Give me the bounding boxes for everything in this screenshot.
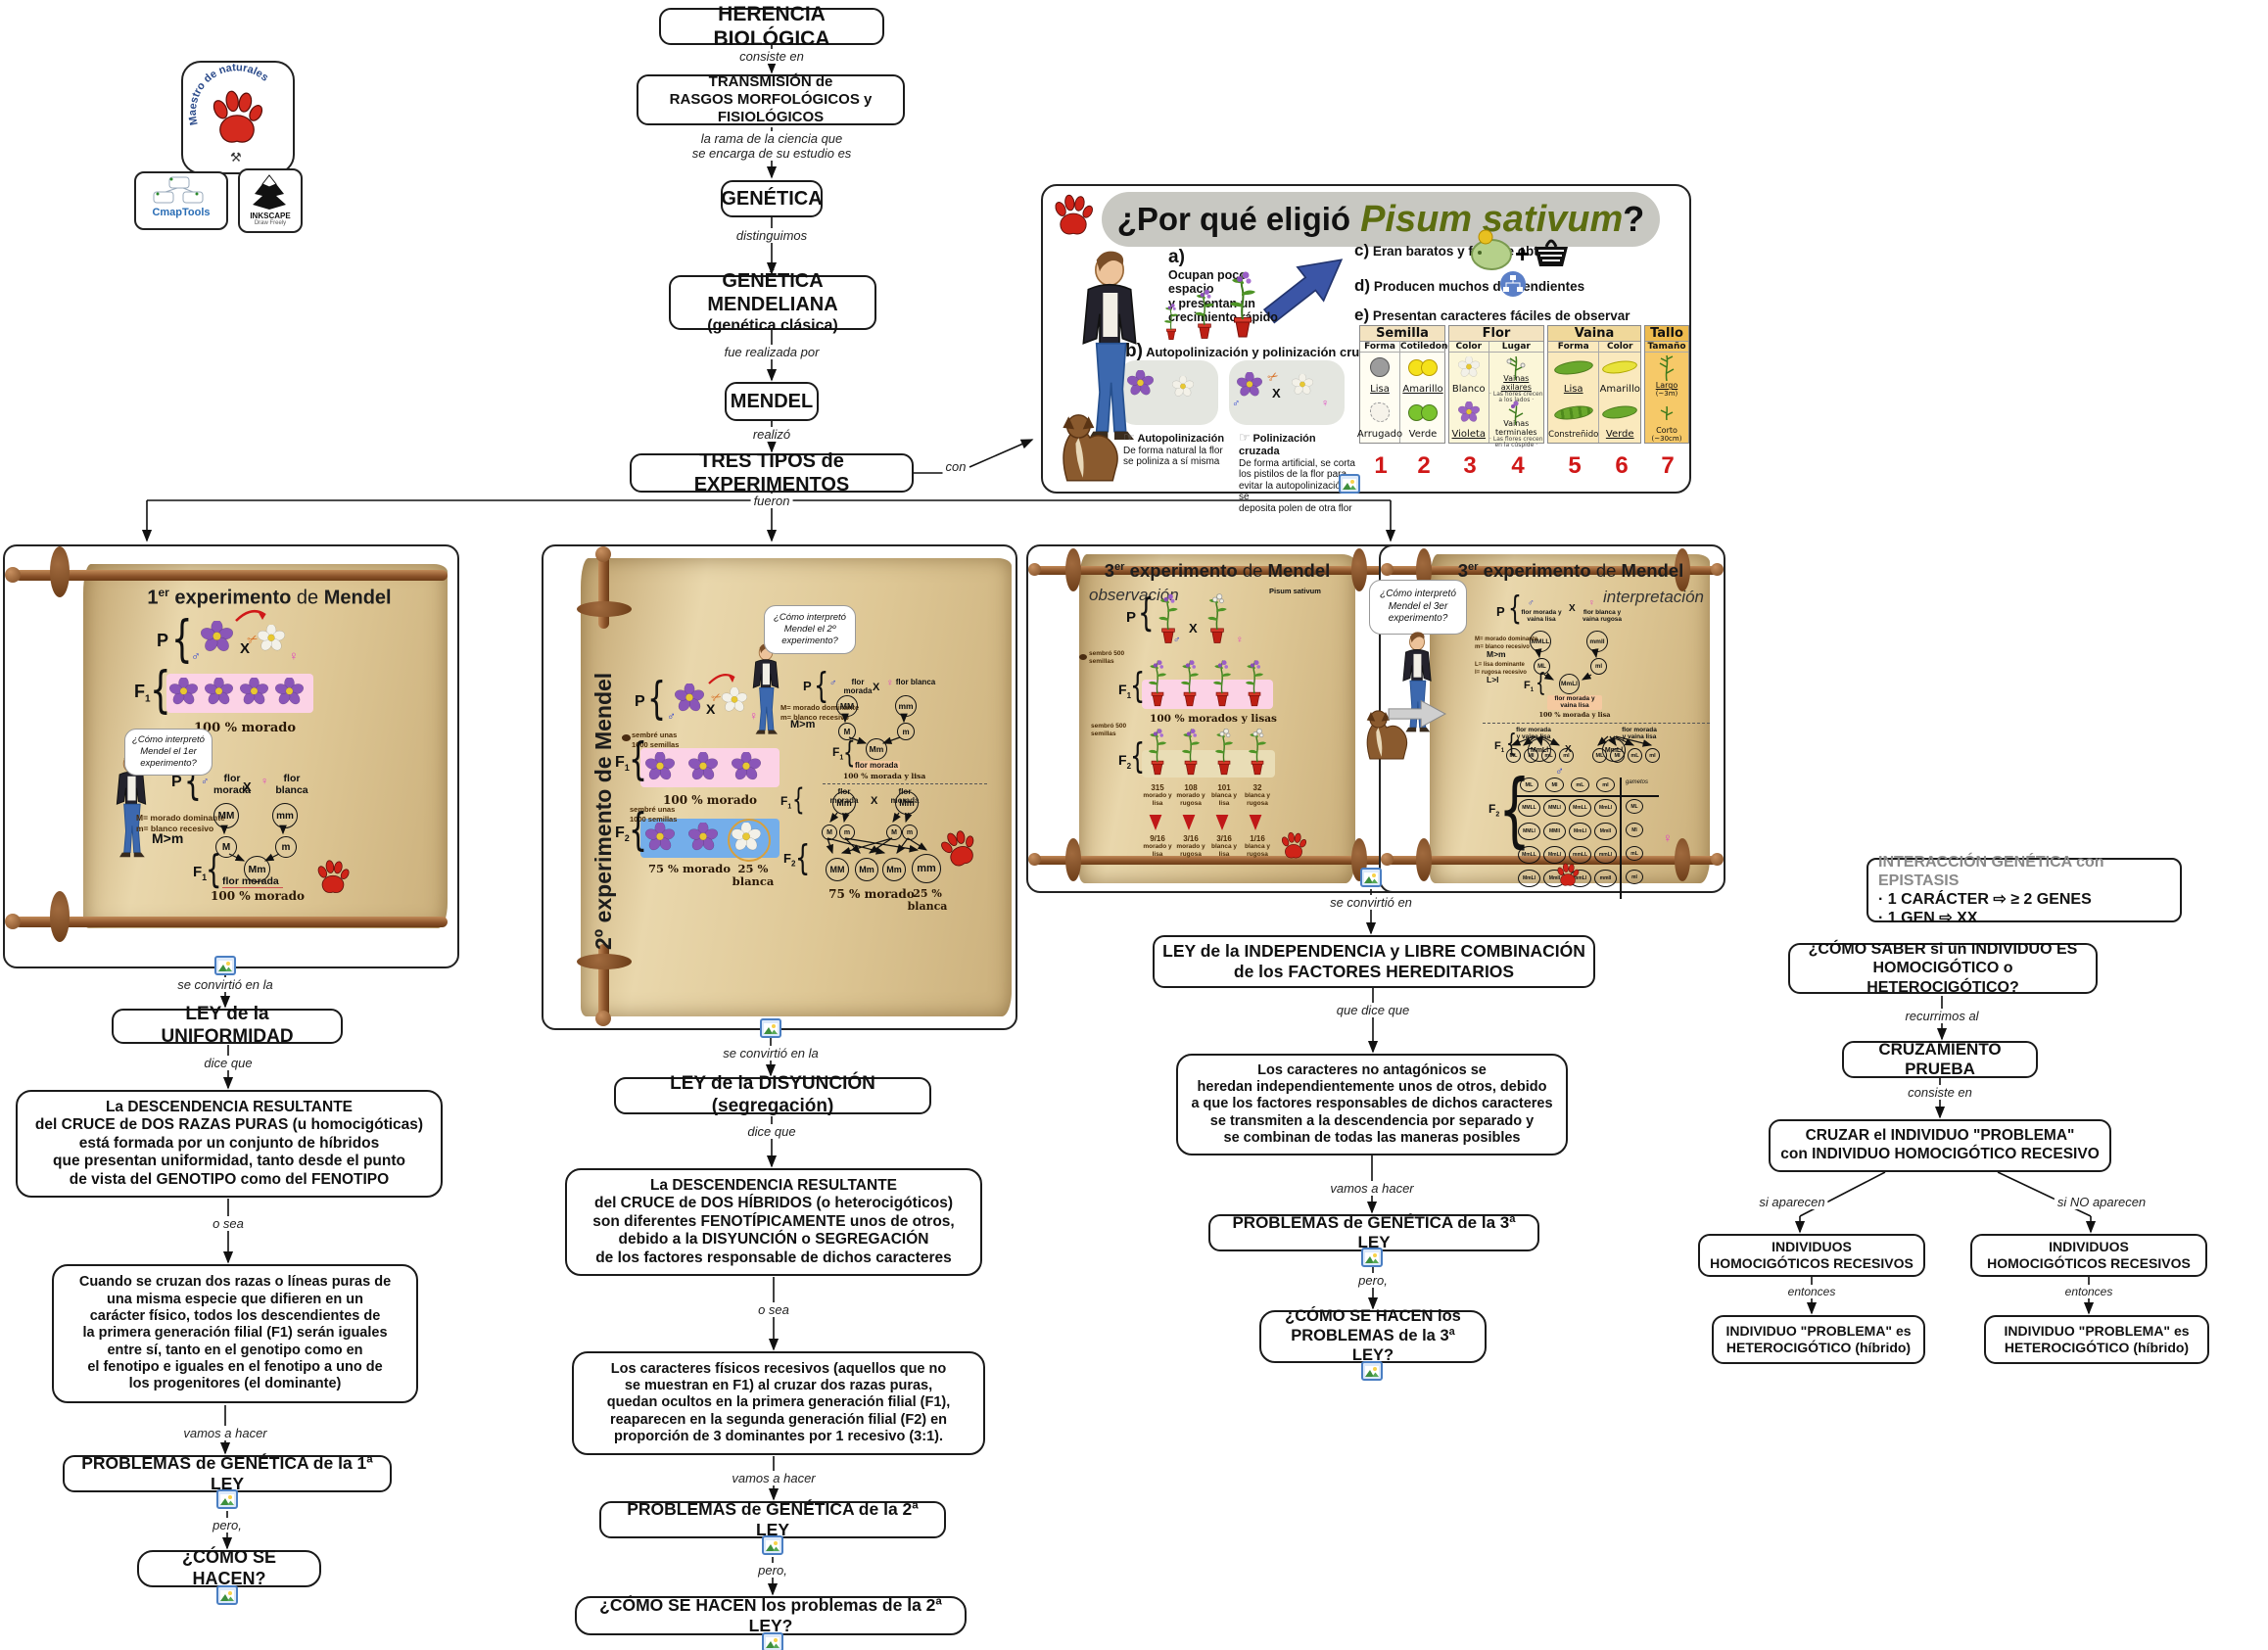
- f2-count: 315morado ylisa: [1142, 783, 1173, 807]
- cmaptools-label: CmapTools: [136, 207, 226, 219]
- white-flower-icon: [1172, 376, 1194, 398]
- exp2-question-bubble: ¿Cómo interpretóMendel el 2ºexperimento?: [764, 605, 856, 654]
- f2-fraction: 9/16morado ylisa: [1142, 834, 1173, 858]
- link-se-convirtio-1[interactable]: se convirtió en la: [174, 977, 276, 992]
- link-distinguimos[interactable]: distinguimos: [733, 228, 810, 243]
- node-cruzamiento-prueba[interactable]: CRUZAMIENTO PRUEBA: [1842, 1041, 2038, 1078]
- resource-icon[interactable]: [216, 1585, 238, 1605]
- paw-logo-icon: Maestro de naturales ⚒: [184, 64, 290, 169]
- exp2-scroll-image[interactable]: 2º experimento de Mendel P { ♂ X ✂ ♀ sem…: [542, 544, 1017, 1030]
- allele-legend: M= morado dominantem= blanco recesivo: [1475, 636, 1537, 652]
- paw-stamp-icon: [314, 858, 352, 895]
- inkscape-label: INKSCAPE: [240, 212, 301, 220]
- genotype-mm: mm: [272, 803, 298, 828]
- resource-icon[interactable]: [1361, 1361, 1383, 1381]
- green-pod-icon: [1602, 404, 1638, 421]
- exp3-observation-scroll-image[interactable]: 3er experimento de Mendel observación Pi…: [1026, 544, 1406, 893]
- gamete-m: m: [275, 836, 297, 858]
- resource-icon[interactable]: [1339, 474, 1360, 494]
- f1-percentage: 100 % morados y lisas: [1150, 713, 1277, 725]
- f2-percentage-recessive: 25 %: [732, 862, 775, 875]
- link-fueron[interactable]: fueron: [751, 494, 793, 508]
- resource-icon[interactable]: [760, 1018, 781, 1038]
- purple-flower-icon: [169, 678, 198, 706]
- node-herencia-biologica[interactable]: HERENCIA BIOLÓGICA: [659, 8, 884, 45]
- female-symbol: ♀: [1321, 398, 1329, 409]
- paw-stamp-icon: [1051, 192, 1096, 237]
- purple-flower-icon: [1127, 370, 1154, 397]
- seed-icon: [1079, 654, 1087, 660]
- link-vamos-2[interactable]: vamos a hacer: [729, 1471, 818, 1485]
- purple-flower-icon: [675, 684, 704, 713]
- concept-map-canvas: Maestro de naturales ⚒ CmapTools INKSCAP…: [0, 0, 2268, 1650]
- wrinkled-seed-icon: [1370, 402, 1390, 422]
- pisum-sativum-panel[interactable]: ¿Por qué eligió Pisum sativum ? a) Ocupa…: [1041, 184, 1691, 494]
- p-generation-label: P: [157, 631, 168, 651]
- link-si-aparecen[interactable]: si aparecen: [1756, 1195, 1827, 1209]
- f2-generation-label: F2: [615, 825, 630, 844]
- dog-cartoon: [1045, 409, 1135, 488]
- inkscape-logo: INKSCAPE Draw Freely: [238, 168, 303, 233]
- purple-flower-icon: [205, 678, 233, 706]
- link-o-sea-1[interactable]: o sea: [210, 1216, 247, 1231]
- f2-fraction: 3/16blanca ylisa: [1208, 834, 1240, 858]
- cross-arrow-icon: [232, 605, 271, 623]
- self-pollination-caption: ☞ Autopolinización De forma natural la f…: [1123, 431, 1233, 468]
- purple-flower-icon: [1237, 372, 1262, 398]
- node-genetica-mendeliana[interactable]: GENÉTICA MENDELIANA(genética clásica): [669, 275, 876, 330]
- node-ley-disyuncion[interactable]: LEY de la DISYUNCIÓN (segregación): [614, 1077, 931, 1114]
- interpretation-arrow-icon: [1387, 697, 1447, 731]
- node-ley-uniformidad[interactable]: LEY de la UNIFORMIDAD: [112, 1009, 343, 1044]
- species-tag: Pisum sativum: [1269, 588, 1321, 596]
- link-dice-que-1[interactable]: dice que: [201, 1056, 255, 1070]
- link-se-convirtio-2[interactable]: se convirtió en la: [720, 1046, 822, 1061]
- node-transmision[interactable]: TRANSMISIÓN deRASGOS MORFOLÓGICOS y FISI…: [637, 74, 905, 125]
- resource-icon[interactable]: [214, 956, 236, 975]
- white-pea-plant: [1203, 589, 1232, 646]
- piggybank-basket-icon: +: [1466, 229, 1574, 270]
- exp2-title: 2º experimento de Mendel: [591, 635, 624, 987]
- scroll-handle: [1381, 853, 1394, 866]
- link-rama-ciencia[interactable]: la rama de la ciencia quese encarga de s…: [689, 131, 855, 161]
- inkscape-sublabel: Draw Freely: [240, 220, 301, 227]
- f1-generation-label: F1: [134, 682, 151, 705]
- resource-icon[interactable]: [762, 1535, 783, 1555]
- link-pero-1[interactable]: pero,: [210, 1518, 245, 1532]
- dominance-relation: M>m: [152, 830, 183, 846]
- resource-icon[interactable]: [762, 1632, 783, 1650]
- purple-pea-plant: [1177, 725, 1205, 778]
- yellow-cotyledons-icon: [1408, 359, 1438, 376]
- link-pero-3[interactable]: pero,: [1355, 1273, 1391, 1288]
- table-group-semilla: Semilla Forma Lisa Arrugado Cotiledones …: [1359, 325, 1445, 444]
- scroll-handle: [5, 914, 21, 929]
- white-flower-icon: [1292, 374, 1313, 396]
- node-individuos-recesivos-right[interactable]: INDIVIDUOSHOMOCIGÓTICOS RECESIVOS: [1970, 1234, 2207, 1277]
- scroll-handle: [1028, 853, 1041, 866]
- link-o-sea-2[interactable]: o sea: [755, 1302, 792, 1317]
- male-symbol: ♂: [191, 648, 201, 663]
- gametes-label: gametos: [1626, 779, 1648, 786]
- exp3-interp-title: 3er experimento de Mendel: [1438, 560, 1704, 582]
- cross-pollination-caption: ☞ Polinización cruzada De forma artifici…: [1239, 431, 1358, 514]
- node-epistasis[interactable]: INTERACCIÓN GENÉTICA con EPISTASIS · 1 C…: [1866, 858, 2182, 922]
- exp1-question-bubble: ¿Cómo interpretóMendel el 1erexperimento…: [124, 729, 213, 776]
- female-phenotype: flor blanca: [268, 773, 315, 796]
- purple-pea-plant: [1241, 656, 1268, 709]
- inkscape-icon: [241, 172, 298, 212]
- node-como-se-hacen-1[interactable]: ¿CÓMO SE HACEN?: [137, 1550, 321, 1587]
- scroll-handle: [1416, 838, 1432, 881]
- purple-pea-plant: [1144, 656, 1171, 709]
- mendel-cartoon: [741, 642, 790, 736]
- scroll-handle: [5, 567, 21, 583]
- scroll-handle: [1711, 563, 1724, 576]
- cross-arrow-icon: [706, 670, 739, 685]
- maestro-logo: Maestro de naturales ⚒: [181, 61, 295, 174]
- genotype-MM: MM: [213, 803, 239, 828]
- purple-flower-icon: [732, 752, 761, 781]
- node-tres-tipos-experimentos[interactable]: TRES TIPOS de EXPERIMENTOS: [630, 453, 914, 493]
- scroll-handle: [1711, 853, 1724, 866]
- link-fue-realizada-por[interactable]: fue realizada por: [722, 345, 823, 359]
- white-flower-icon: [1458, 356, 1480, 378]
- link-recurrimos-al[interactable]: recurrimos al: [1902, 1009, 1981, 1023]
- scroll-handle: [595, 1011, 611, 1026]
- node-def-independencia[interactable]: Los caracteres no antagónicos seheredan …: [1176, 1054, 1568, 1155]
- violet-flower-icon: [1458, 401, 1480, 423]
- trait-number: 5: [1568, 452, 1581, 480]
- trait-number: 1: [1374, 452, 1387, 480]
- node-como-se-hacen-3[interactable]: ¿CÓMO SE HACEN losPROBLEMAS de la 3ª LEY…: [1259, 1310, 1487, 1363]
- f2-count: 108morado yrugosa: [1175, 783, 1206, 807]
- resource-icon[interactable]: [1360, 868, 1382, 887]
- node-genetica[interactable]: GENÉTICA: [721, 180, 823, 217]
- pisum-item-e: e) Presentan caracteres fáciles de obser…: [1354, 306, 1630, 325]
- link-si-no-aparecen[interactable]: si NO aparecen: [2055, 1195, 2149, 1209]
- exp1-scroll-image[interactable]: 1er experimento de Mendel P { ♂ X ✂ ♀ F1…: [3, 544, 459, 968]
- allele-legend: L= lisa dominantel= rugosa recesivo: [1475, 662, 1527, 678]
- yellow-pod-icon: [1602, 359, 1638, 376]
- resource-icon[interactable]: [216, 1489, 238, 1509]
- f1-cross-phenotype: flor moraday vaina lisa: [1614, 727, 1665, 741]
- cmaptools-icon: [150, 176, 209, 206]
- pisum-item-b: b) Autopolinización y polinización cruza…: [1125, 341, 1388, 362]
- female-symbol: ♀: [289, 648, 299, 663]
- f1-phenotype: flor morada yvaina lisa: [1547, 695, 1602, 710]
- link-pero-2[interactable]: pero,: [755, 1563, 790, 1578]
- smooth-pod-icon: [1553, 358, 1593, 376]
- highlight-ring: [728, 819, 771, 862]
- trait-number: 3: [1463, 452, 1476, 480]
- purple-flower-icon: [688, 823, 718, 852]
- scroll-handle: [595, 546, 611, 562]
- scroll-handle: [1675, 838, 1690, 881]
- scroll-handle: [50, 891, 70, 942]
- table-group-vaina: Vaina Forma Lisa Constreñido Color Amari…: [1547, 325, 1641, 444]
- p-male-phenotype: flor morada yvaina lisa: [1518, 609, 1565, 624]
- f2-count: 101blanca ylisa: [1208, 783, 1240, 807]
- link-consiste-en-2[interactable]: consiste en: [1905, 1085, 1975, 1100]
- node-def-disyuncion[interactable]: La DESCENDENCIA RESULTANTEdel CRUCE de D…: [565, 1168, 982, 1276]
- node-problemas-3ley[interactable]: PROBLEMAS de GENÉTICA de la 3ª LEY: [1208, 1214, 1539, 1251]
- purple-flower-icon: [201, 621, 233, 653]
- constricted-pod-icon: [1553, 403, 1593, 421]
- table-group-tallo: Tallo Tamaño Largo(~3m) Corto(~30cm): [1644, 325, 1689, 444]
- trait-number: 6: [1615, 452, 1628, 480]
- p-generation-label: P: [635, 693, 645, 711]
- exp3-question-bubble: ¿Cómo interpretóMendel el 3erexperimento…: [1369, 580, 1467, 635]
- trait-number: 2: [1417, 452, 1430, 480]
- link-entonces-right[interactable]: entonces: [2062, 1285, 2116, 1298]
- f1-generation-label: F1: [615, 754, 630, 774]
- link-vamos-1[interactable]: vamos a hacer: [180, 1426, 269, 1440]
- smooth-seed-icon: [1370, 357, 1390, 377]
- trait-number: 4: [1511, 452, 1524, 480]
- pointing-hand-icon: ☞: [1239, 430, 1251, 445]
- white-pea-plant: [1244, 725, 1271, 778]
- svg-text:⚒: ⚒: [230, 150, 242, 165]
- paw-stamp-icon: [1279, 830, 1308, 860]
- node-def2-disyuncion[interactable]: Los caracteres físicos recesivos (aquell…: [572, 1351, 985, 1455]
- f2-percentage-dominant: 75 % morado: [645, 862, 733, 875]
- purple-pea-plant: [1176, 656, 1204, 709]
- pea-plant-medium: [1190, 286, 1219, 341]
- purple-pea-plant: [1208, 656, 1236, 709]
- link-dice-que-2[interactable]: dice que: [744, 1124, 798, 1139]
- node-mendel[interactable]: MENDEL: [725, 382, 819, 421]
- purple-flower-icon: [275, 678, 304, 706]
- f2-fraction: 3/16morado yrugosa: [1175, 834, 1206, 858]
- purple-pea-plant: [1144, 725, 1171, 778]
- link-consiste-en[interactable]: consiste en: [736, 49, 807, 64]
- scroll-handle: [50, 546, 70, 597]
- node-como-se-hacen-2[interactable]: ¿CÓMO SE HACEN los problemas de la 2ª LE…: [575, 1596, 967, 1635]
- link-se-convirtio-3[interactable]: se convirtió en: [1327, 895, 1415, 910]
- short-stem-icon: [1658, 404, 1676, 420]
- node-problema-heterocigotico-left[interactable]: INDIVIDUO "PROBLEMA" esHETEROCIGÓTICO (h…: [1712, 1315, 1925, 1364]
- white-flower-icon: [258, 625, 285, 652]
- node-como-saber[interactable]: ¿CÓMO SABER si un INDIVIDUO ESHOMOCIGÓTI…: [1788, 943, 2098, 994]
- node-ley-independencia[interactable]: LEY de la INDEPENDENCIA y LIBRE COMBINAC…: [1153, 935, 1595, 988]
- scroll-handle: [1065, 548, 1081, 591]
- node-cruzar-individuo[interactable]: CRUZAR el INDIVIDUO "PROBLEMA"con INDIVI…: [1769, 1119, 2111, 1172]
- scroll-handle: [577, 601, 632, 617]
- link-con[interactable]: con: [943, 459, 969, 474]
- p-female-phenotype: flor blanca yvaina rugosa: [1577, 609, 1628, 624]
- node-problema-heterocigotico-right[interactable]: INDIVIDUO "PROBLEMA" esHETEROCIGÓTICO (h…: [1984, 1315, 2209, 1364]
- pisum-title-question: ¿Por qué eligió: [1117, 201, 1350, 238]
- f1-phenotype: flor morada: [222, 875, 291, 887]
- purple-flower-icon: [688, 752, 718, 781]
- white-pea-plant: [1210, 725, 1238, 778]
- purple-flower-icon: [645, 752, 675, 781]
- tall-stem-icon: [1657, 354, 1677, 381]
- table-group-flor: Flor Color Blanco Violeta Lugar Vainas a…: [1448, 325, 1544, 444]
- cmaptools-logo: CmapTools: [134, 171, 228, 230]
- traits-table: Semilla Forma Lisa Arrugado Cotiledones …: [1359, 325, 1689, 444]
- male-symbol: ♂: [1232, 398, 1240, 409]
- sow-note: sembró 500semillas: [1089, 650, 1124, 667]
- purple-flower-icon: [645, 823, 675, 852]
- f1-percentage: 100 % morado: [211, 889, 299, 903]
- f2-count: 32blanca yrugosa: [1242, 783, 1273, 807]
- link-vamos-3[interactable]: vamos a hacer: [1327, 1181, 1416, 1196]
- resource-icon[interactable]: [1361, 1248, 1383, 1267]
- descendants-tree-icon: [1499, 270, 1527, 298]
- node-individuos-recesivos-left[interactable]: INDIVIDUOSHOMOCIGÓTICOS RECESIVOS: [1698, 1234, 1925, 1277]
- link-que-dice-que[interactable]: que dice que: [1334, 1003, 1412, 1017]
- node-def2-uniformidad[interactable]: Cuando se cruzan dos razas o líneas pura…: [52, 1264, 418, 1403]
- exp3-obs-title: 3er experimento de Mendel: [1087, 560, 1347, 582]
- f2-fraction: 1/16blanca yrugosa: [1242, 834, 1273, 858]
- scroll-handle: [1351, 548, 1367, 591]
- purple-flower-icon: [240, 678, 268, 706]
- pea-plant-small: [1160, 302, 1182, 341]
- paw-stamp-icon: [1555, 862, 1581, 887]
- node-problemas-1ley[interactable]: PROBLEMAS de GENÉTICA de la 1ª LEY: [63, 1455, 392, 1492]
- scroll-handle: [1381, 563, 1394, 576]
- scroll-handle: [1028, 563, 1041, 576]
- pea-plant-large: [1223, 266, 1262, 341]
- link-realizo[interactable]: realizó: [750, 427, 793, 442]
- trait-number: 7: [1661, 452, 1674, 480]
- pointing-hand-icon: ☞: [1123, 430, 1135, 445]
- scroll-handle: [1065, 838, 1081, 881]
- node-def-uniformidad[interactable]: La DESCENDENCIA RESULTANTEdel CRUCE de D…: [16, 1090, 443, 1198]
- pisum-item-d: d) Producen muchos descendientes: [1354, 276, 1584, 296]
- link-entonces-left[interactable]: entonces: [1785, 1285, 1839, 1298]
- pisum-title-bubble: ¿Por qué eligió Pisum sativum ?: [1102, 192, 1660, 247]
- node-problemas-2ley[interactable]: PROBLEMAS de GENÉTICA de la 2ª LEY: [599, 1501, 946, 1538]
- green-cotyledons-icon: [1408, 404, 1438, 421]
- sow-note: sembró 500semillas: [1091, 723, 1126, 739]
- dominance-relation: M>m: [790, 719, 815, 731]
- svg-text:+: +: [1515, 239, 1530, 268]
- p-generation-label: P: [171, 774, 182, 791]
